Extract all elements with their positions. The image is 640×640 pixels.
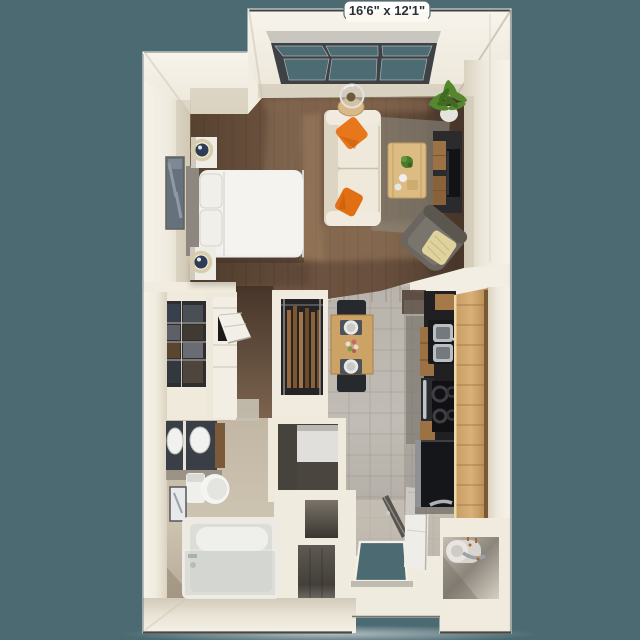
svg-text:16'6" x 12'1": 16'6" x 12'1" <box>349 3 425 18</box>
